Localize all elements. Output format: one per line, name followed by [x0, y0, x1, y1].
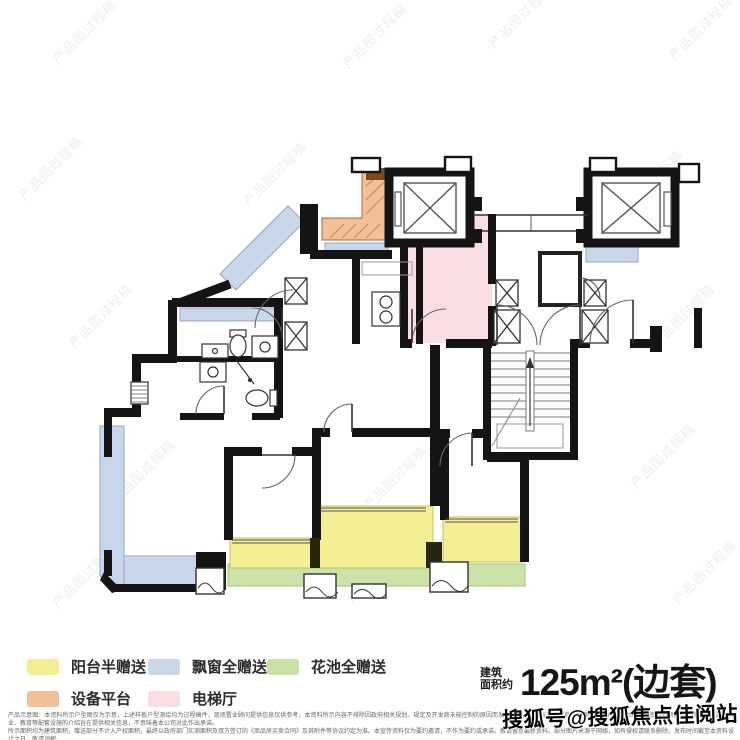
legend-swatch-flowerbed	[267, 659, 299, 675]
legend-label: 电梯厅	[192, 688, 237, 709]
bathroom-fixtures	[200, 330, 278, 406]
sohu-watermark: 搜狐号@搜狐焦点佳阅站	[502, 698, 739, 734]
legend-label: 花池全赠送	[311, 656, 386, 677]
area-value: 125m²(边套)	[520, 652, 717, 706]
equipment-platform-area	[322, 168, 388, 240]
legend-label: 飘窗全赠送	[192, 656, 267, 677]
balcony-area-right	[443, 517, 523, 562]
floor-plan	[0, 0, 740, 740]
legend-label: 设备平台	[71, 688, 131, 709]
right-elevator	[588, 172, 675, 243]
floorplan-page: 产品图过程稿 产品图过程稿 产品图过程稿 产品图过程稿 产品图过程稿 产品图过程…	[0, 0, 740, 740]
legend-label: 阳台半赠送	[71, 656, 146, 677]
bay-window-right	[586, 246, 638, 262]
hatched-window	[131, 382, 148, 404]
kitchen-stove-icon	[372, 292, 400, 326]
area-label: 建筑 面积约	[480, 667, 513, 691]
left-elevator	[389, 172, 470, 243]
legend-item: 阳台半赠送	[27, 656, 146, 677]
legend-item: 设备平台	[27, 688, 131, 709]
legend-item: 电梯厅	[148, 688, 237, 709]
legend-swatch-baywindow	[148, 659, 180, 675]
legend-swatch-elevatorhall	[148, 691, 180, 707]
legend-item: 飘窗全赠送	[148, 656, 267, 677]
legend-swatch-equipment	[27, 691, 59, 707]
bay-window-left-strip	[100, 426, 200, 588]
area-block: 建筑 面积约 125m²(边套)	[480, 652, 717, 706]
staircase	[491, 351, 570, 448]
legend-swatch-balcony	[27, 659, 59, 675]
legend-item: 花池全赠送	[267, 656, 386, 677]
balcony-area-middle	[316, 506, 433, 568]
